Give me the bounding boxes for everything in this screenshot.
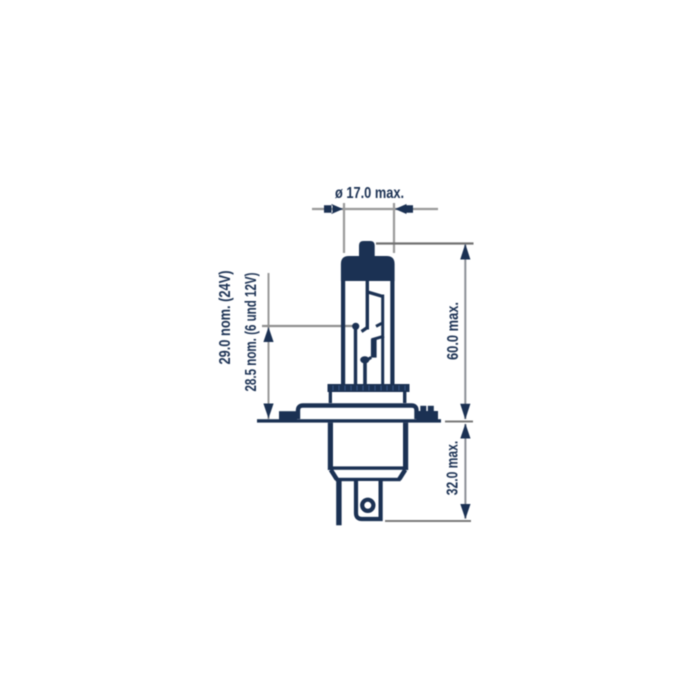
svg-text:28.5 nom. (6 und 12V): 28.5 nom. (6 und 12V) xyxy=(243,273,260,392)
svg-text:60.0 max.: 60.0 max. xyxy=(445,302,462,360)
svg-text:29.0 nom. (24V): 29.0 nom. (24V) xyxy=(217,271,234,365)
svg-text:32.0 max.: 32.0 max. xyxy=(444,441,461,496)
svg-text:ø 17.0 max.: ø 17.0 max. xyxy=(335,185,404,202)
